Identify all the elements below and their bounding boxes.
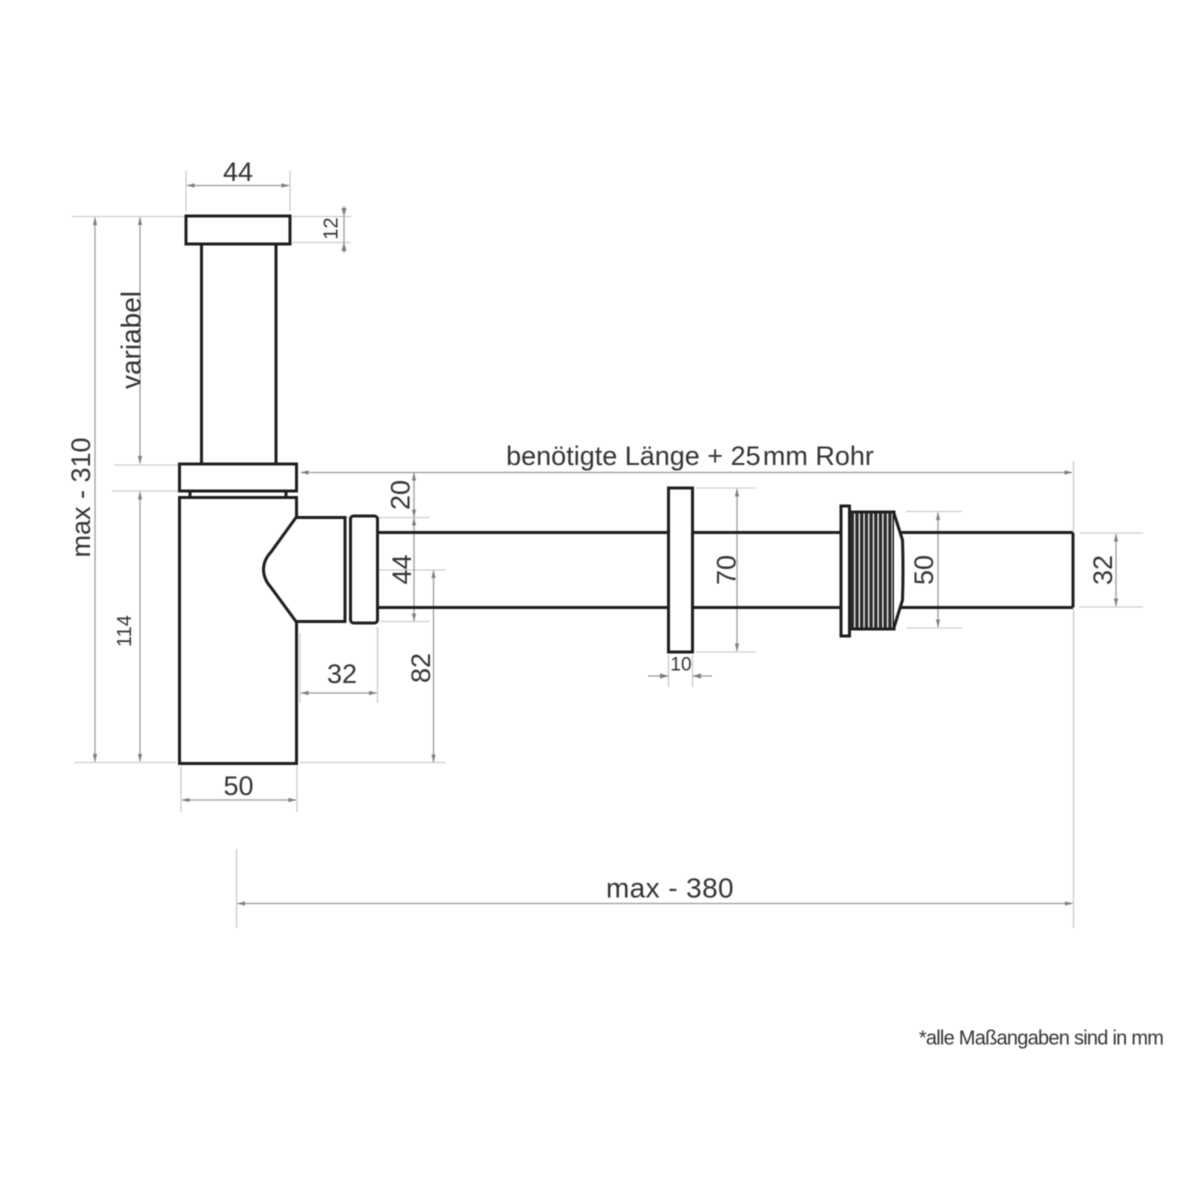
svg-text:10: 10 [670, 655, 691, 676]
svg-text:32: 32 [327, 659, 357, 689]
svg-text:12: 12 [321, 217, 343, 239]
svg-text:benötigte Länge + 25 mm Rohr: benötigte Länge + 25 mm Rohr [506, 441, 874, 471]
svg-text:max - 380: max - 380 [606, 873, 734, 904]
svg-text:50: 50 [223, 771, 253, 801]
svg-text:44: 44 [223, 157, 253, 187]
svg-text:44: 44 [387, 554, 417, 584]
svg-text:70: 70 [712, 555, 742, 585]
svg-text:50: 50 [909, 555, 939, 585]
svg-text:variabel: variabel [116, 291, 147, 389]
svg-text:114: 114 [114, 615, 136, 647]
svg-text:*alle Maßangaben sind in mm: *alle Maßangaben sind in mm [919, 1028, 1163, 1050]
svg-text:82: 82 [406, 653, 436, 683]
svg-text:32: 32 [1088, 555, 1118, 585]
svg-text:20: 20 [386, 480, 416, 510]
svg-text:max - 310: max - 310 [66, 437, 96, 557]
